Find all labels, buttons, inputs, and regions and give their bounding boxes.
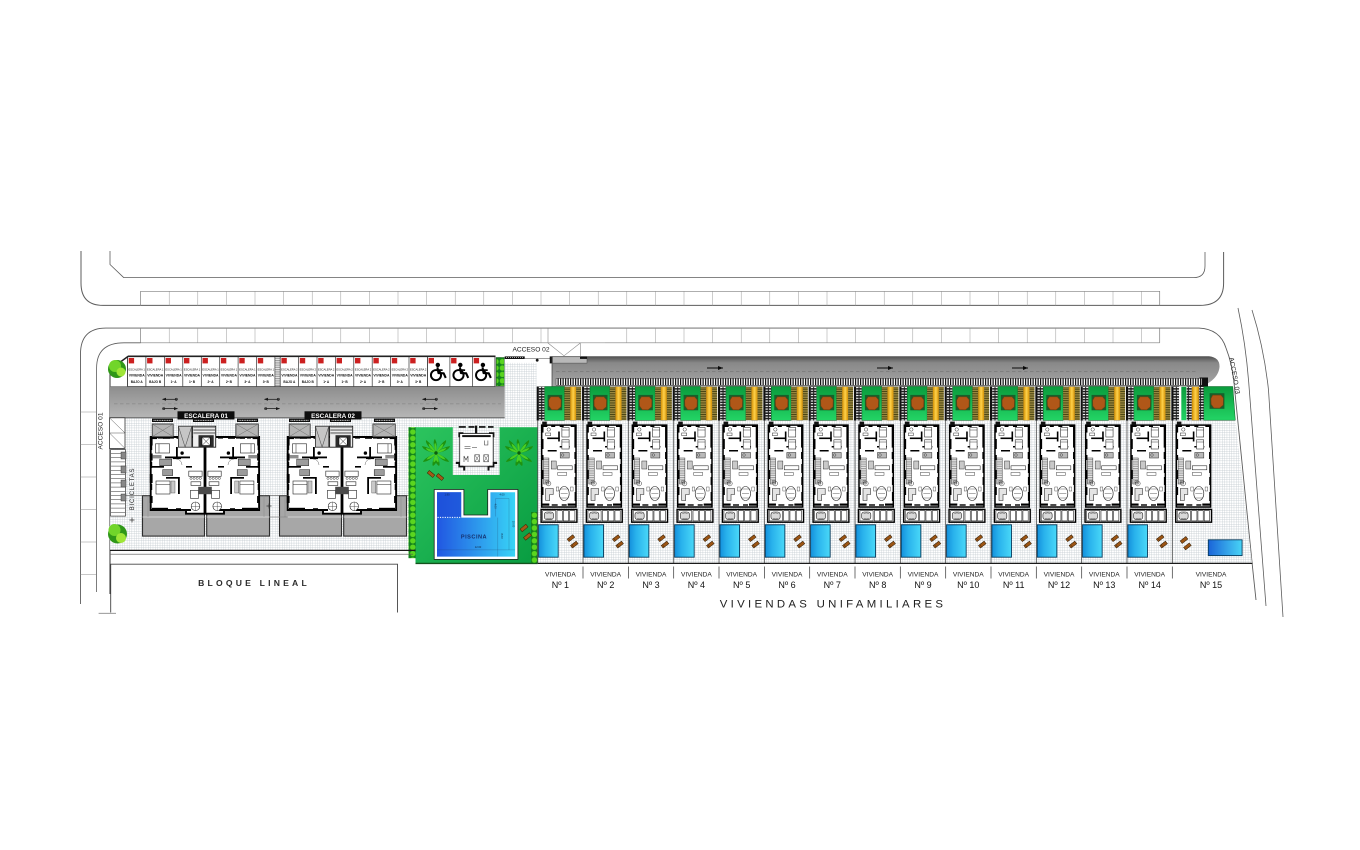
- svg-text:ESCALERA 2: ESCALERA 2: [281, 368, 298, 372]
- svg-text:ESCALERA 1: ESCALERA 1: [239, 368, 256, 372]
- svg-text:1.90: 1.90: [444, 493, 450, 497]
- svg-text:BLOQUE LINEAL: BLOQUE LINEAL: [198, 578, 310, 588]
- svg-text:1º B: 1º B: [189, 380, 196, 384]
- svg-text:VIVIENDA: VIVIENDA: [545, 571, 576, 578]
- svg-text:ESCALERA 2: ESCALERA 2: [318, 368, 335, 372]
- svg-text:ESCALERA 1: ESCALERA 1: [165, 368, 182, 372]
- svg-text:12.00: 12.00: [475, 545, 482, 549]
- svg-text:PISCINA: PISCINA: [461, 535, 487, 541]
- svg-text:VIVIENDA: VIVIENDA: [392, 374, 409, 378]
- svg-text:VIVIENDA: VIVIENDA: [998, 571, 1029, 578]
- svg-text:BAJO B: BAJO B: [149, 380, 162, 384]
- svg-text:ACCESO 01: ACCESO 01: [97, 412, 104, 449]
- svg-text:Nº 7: Nº 7: [824, 580, 841, 590]
- svg-text:3º B: 3º B: [415, 380, 422, 384]
- svg-text:VIVIENDA: VIVIENDA: [1089, 571, 1120, 578]
- svg-text:VIVIENDA: VIVIENDA: [953, 571, 984, 578]
- svg-text:ESCALERA 02: ESCALERA 02: [311, 413, 355, 420]
- svg-text:1º A: 1º A: [323, 380, 330, 384]
- svg-text:Nº 12: Nº 12: [1048, 580, 1070, 590]
- svg-text:1º B: 1º B: [342, 380, 349, 384]
- svg-text:ESCALERA 2: ESCALERA 2: [336, 368, 353, 372]
- svg-text:Nº 1: Nº 1: [552, 580, 569, 590]
- svg-text:1º A: 1º A: [171, 380, 178, 384]
- svg-text:VIVIENDA: VIVIENDA: [772, 571, 803, 578]
- svg-text:Nº 4: Nº 4: [688, 580, 705, 590]
- svg-text:VIVIENDA: VIVIENDA: [908, 571, 939, 578]
- svg-text:VIVIENDA: VIVIENDA: [281, 374, 298, 378]
- svg-text:VIVIENDAS UNIFAMILIARES: VIVIENDAS UNIFAMILIARES: [720, 599, 947, 611]
- svg-text:3º A: 3º A: [244, 380, 251, 384]
- svg-text:VIVIENDA: VIVIENDA: [1196, 571, 1227, 578]
- svg-text:ESCALERA 1: ESCALERA 1: [184, 368, 201, 372]
- svg-text:VIVIENDA: VIVIENDA: [239, 374, 256, 378]
- svg-text:Nº 15: Nº 15: [1200, 580, 1222, 590]
- svg-text:2º B: 2º B: [226, 380, 233, 384]
- svg-text:BICICLETAS: BICICLETAS: [130, 468, 136, 511]
- svg-text:Nº 13: Nº 13: [1093, 580, 1115, 590]
- svg-text:VIVIENDA: VIVIENDA: [1134, 571, 1165, 578]
- svg-text:2º A: 2º A: [207, 380, 214, 384]
- svg-text:Nº 5: Nº 5: [733, 580, 750, 590]
- svg-text:VIVIENDA: VIVIENDA: [862, 571, 893, 578]
- svg-text:VIVIENDA: VIVIENDA: [147, 374, 164, 378]
- svg-text:ESCALERA 2: ESCALERA 2: [300, 368, 317, 372]
- svg-text:VIVIENDA: VIVIENDA: [636, 571, 667, 578]
- svg-text:Nº 6: Nº 6: [778, 580, 795, 590]
- svg-text:VIVIENDA: VIVIENDA: [300, 374, 317, 378]
- svg-text:ESCALERA 1: ESCALERA 1: [128, 368, 145, 372]
- svg-text:VIVIENDA: VIVIENDA: [817, 571, 848, 578]
- svg-text:BAJO B: BAJO B: [302, 380, 315, 384]
- svg-text:4.00: 4.00: [494, 503, 498, 509]
- svg-text:ESCALERA 2: ESCALERA 2: [410, 368, 427, 372]
- svg-text:VIVIENDA: VIVIENDA: [166, 374, 183, 378]
- svg-text:VIVIENDA: VIVIENDA: [1044, 571, 1075, 578]
- svg-text:VIVIENDA: VIVIENDA: [221, 374, 238, 378]
- svg-text:ESCALERA 01: ESCALERA 01: [184, 413, 228, 420]
- svg-text:8.00: 8.00: [500, 533, 504, 539]
- svg-text:3º A: 3º A: [397, 380, 404, 384]
- svg-text:VIVIENDA: VIVIENDA: [410, 374, 427, 378]
- svg-text:Nº 8: Nº 8: [869, 580, 886, 590]
- svg-text:VIVIENDA: VIVIENDA: [202, 374, 219, 378]
- svg-text:VIVIENDA: VIVIENDA: [258, 374, 275, 378]
- svg-text:3º B: 3º B: [263, 380, 270, 384]
- svg-text:Nº 2: Nº 2: [597, 580, 614, 590]
- svg-text:4.00: 4.00: [499, 493, 505, 497]
- svg-text:VIVIENDA: VIVIENDA: [129, 374, 146, 378]
- svg-text:VIVIENDA: VIVIENDA: [318, 374, 335, 378]
- svg-text:2º A: 2º A: [360, 380, 367, 384]
- svg-text:BAJO A: BAJO A: [283, 380, 296, 384]
- svg-text:VIVIENDA: VIVIENDA: [681, 571, 712, 578]
- svg-text:Nº 11: Nº 11: [1003, 580, 1025, 590]
- svg-text:ESCALERA 1: ESCALERA 1: [147, 368, 164, 372]
- svg-text:2º B: 2º B: [378, 380, 385, 384]
- svg-text:ESCALERA 1: ESCALERA 1: [258, 368, 275, 372]
- svg-text:VIVIENDA: VIVIENDA: [337, 374, 354, 378]
- svg-text:ESCALERA 2: ESCALERA 2: [373, 368, 390, 372]
- svg-text:ESCALERA 2: ESCALERA 2: [355, 368, 372, 372]
- svg-text:VIVIENDA: VIVIENDA: [373, 374, 390, 378]
- svg-text:VIVIENDA: VIVIENDA: [726, 571, 757, 578]
- svg-text:10.00: 10.00: [511, 521, 515, 528]
- svg-text:ESCALERA 2: ESCALERA 2: [392, 368, 409, 372]
- svg-text:VIVIENDA: VIVIENDA: [590, 571, 621, 578]
- svg-text:VIVIENDA: VIVIENDA: [184, 374, 201, 378]
- svg-text:ESCALERA 1: ESCALERA 1: [202, 368, 219, 372]
- svg-text:VIVIENDA: VIVIENDA: [355, 374, 372, 378]
- svg-text:ACCESO 02: ACCESO 02: [512, 347, 549, 354]
- svg-text:Nº 9: Nº 9: [914, 580, 931, 590]
- svg-text:Nº 14: Nº 14: [1139, 580, 1161, 590]
- svg-text:BAJO A: BAJO A: [131, 380, 144, 384]
- svg-text:ESCALERA 1: ESCALERA 1: [221, 368, 238, 372]
- svg-text:Nº 3: Nº 3: [642, 580, 659, 590]
- svg-text:Nº 10: Nº 10: [957, 580, 979, 590]
